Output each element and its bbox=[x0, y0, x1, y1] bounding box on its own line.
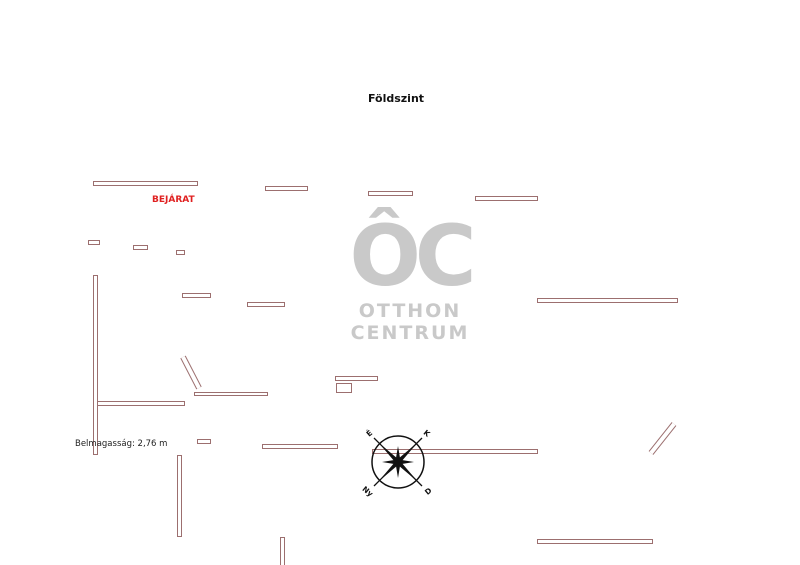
wall bbox=[475, 196, 538, 201]
wall bbox=[93, 181, 198, 186]
wall bbox=[194, 392, 268, 396]
ceiling-height-note: Belmagasság: 2,76 m bbox=[75, 439, 167, 449]
wall bbox=[88, 240, 100, 245]
wall bbox=[335, 376, 378, 381]
wall bbox=[336, 383, 352, 393]
wall bbox=[93, 275, 98, 455]
wall bbox=[177, 455, 182, 537]
wall bbox=[372, 449, 538, 454]
wall bbox=[133, 245, 148, 250]
wall bbox=[93, 401, 185, 406]
wall bbox=[265, 186, 308, 191]
compass-rose: É K D Ny bbox=[361, 428, 434, 498]
compass-letter: K bbox=[422, 428, 433, 439]
watermark-line2: CENTRUM bbox=[330, 322, 490, 344]
page-title: Földszint bbox=[341, 92, 451, 105]
floor-plan: ÔC OTTHON CENTRUM bbox=[0, 0, 800, 565]
wall bbox=[537, 298, 678, 303]
wall bbox=[176, 250, 185, 255]
entrance-label: BEJÁRAT bbox=[152, 195, 195, 205]
watermark-logo: ÔC bbox=[330, 212, 490, 300]
wall bbox=[537, 539, 653, 544]
compass-letter: D bbox=[423, 486, 434, 497]
wall bbox=[262, 444, 338, 449]
wall bbox=[197, 439, 211, 444]
compass-letter: É bbox=[364, 428, 374, 438]
compass-letter: Ny bbox=[361, 484, 375, 498]
watermark: ÔC OTTHON CENTRUM bbox=[330, 212, 490, 344]
wall bbox=[280, 537, 285, 565]
wall bbox=[247, 302, 285, 307]
wall bbox=[368, 191, 413, 196]
wall bbox=[182, 293, 211, 298]
